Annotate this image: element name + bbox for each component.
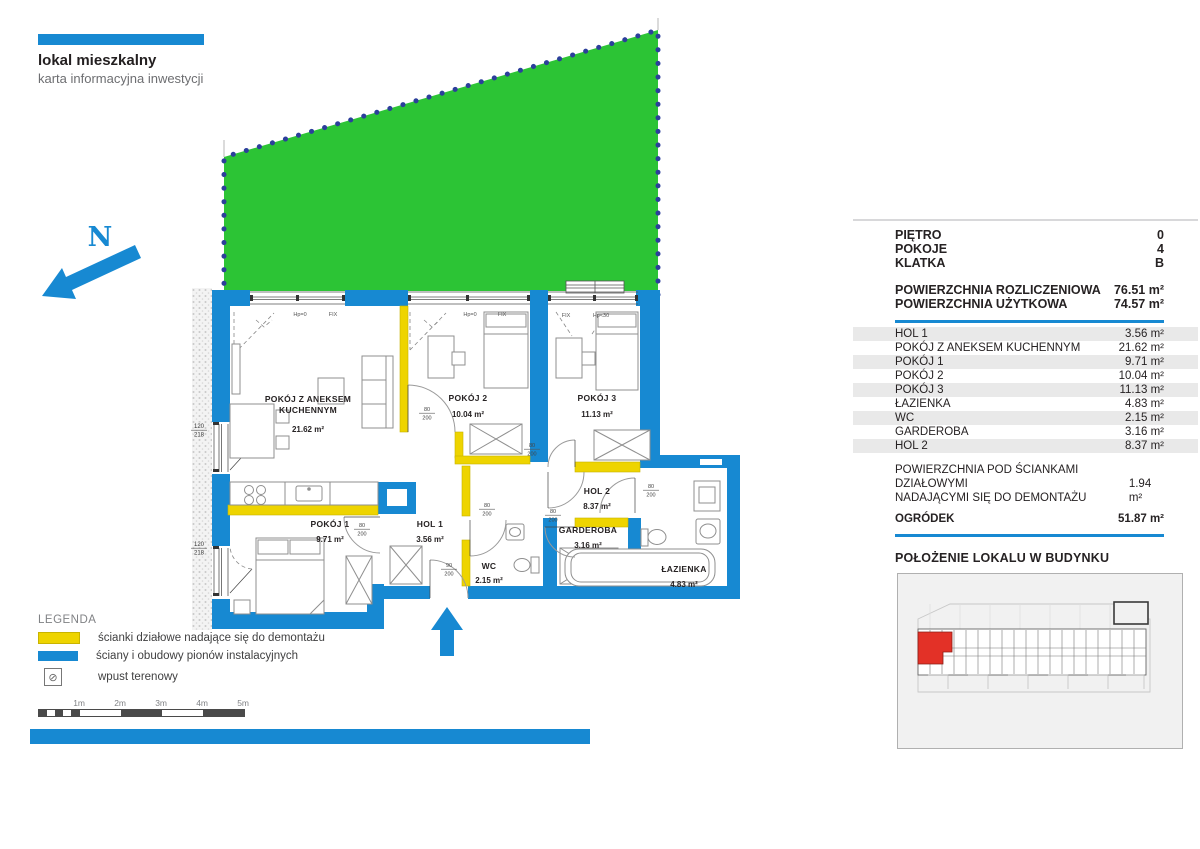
dimension-label: 200 — [527, 452, 536, 458]
dimension-label: 80 — [529, 443, 535, 449]
divider — [895, 320, 1164, 323]
dimension-label: 218 — [194, 551, 205, 557]
bath-toilet — [641, 529, 648, 546]
room-label: POKÓJ 2 — [449, 392, 488, 403]
balcony-door-2 — [214, 547, 252, 596]
room-label: GARDEROBA — [559, 525, 617, 535]
legend-item-walls: ściany i obudowy pionów instalacyjnych — [38, 650, 325, 662]
area-label: 8.37 m² — [583, 502, 611, 511]
area-label: 11.13 m² — [581, 410, 613, 419]
scale-label: 3m — [126, 698, 167, 708]
dimension-label: 80 — [550, 509, 556, 515]
dining-table — [230, 404, 274, 458]
area-summary-rows: POWIERZCHNIA ROZLICZENIOWA76.51 m²POWIER… — [853, 283, 1198, 311]
room-label: WC — [482, 561, 497, 571]
scale-labels: 1m2m3m4m5m — [38, 698, 244, 708]
adjacent-structure-hatch — [192, 288, 212, 630]
vent-slot — [700, 459, 722, 465]
mini-map-annex — [1114, 602, 1148, 624]
area-label: 3.16 m² — [574, 541, 602, 550]
room-row: POKÓJ Z ANEKSEM KUCHENNYM21.62 m² — [853, 341, 1198, 355]
garden-area — [224, 18, 658, 297]
area-label: 10.04 m² — [452, 410, 484, 419]
room-row: POKÓJ 210.04 m² — [853, 369, 1198, 383]
dimension-label: 200 — [482, 512, 491, 518]
drain-icon: ⊘ — [44, 668, 62, 686]
scale-label: 4m — [167, 698, 208, 708]
nightstand — [234, 600, 250, 614]
wc-sink — [506, 524, 524, 540]
legend-title: LEGENDA — [38, 614, 325, 626]
scale-label: 2m — [85, 698, 126, 708]
sofa — [362, 356, 393, 428]
scale-label: 5m — [208, 698, 249, 708]
area-label: 3.56 m² — [416, 535, 444, 544]
dimension-label: 200 — [646, 493, 655, 499]
area-label: 2.15 m² — [475, 576, 503, 585]
area-label: 4.83 m² — [670, 580, 698, 589]
window-frame-pokoj3 — [566, 281, 624, 293]
location-heading: POŁOŻENIE LOKALU W BUDYNKU — [853, 541, 1198, 565]
room-row: POKÓJ 311.13 m² — [853, 383, 1198, 397]
scale-bar-graphic — [38, 709, 245, 717]
area-label: 9.71 m² — [316, 535, 344, 544]
area-label: 21.62 m² — [292, 425, 324, 434]
room-row: ŁAZIENKA4.83 m² — [853, 397, 1198, 411]
divider — [895, 534, 1164, 537]
room-row: WC2.15 m² — [853, 411, 1198, 425]
room-row: POKÓJ 19.71 m² — [853, 355, 1198, 369]
scale-label: 1m — [44, 698, 85, 708]
garden-value: 51.87 m² — [1118, 513, 1164, 525]
scale-bar: 1m2m3m4m5m — [38, 698, 244, 717]
area-row: POWIERZCHNIA UŻYTKOWA74.57 m² — [853, 297, 1198, 311]
win-label: FIX — [562, 313, 571, 319]
area-row: POWIERZCHNIA ROZLICZENIOWA76.51 m² — [853, 283, 1198, 297]
north-label: N — [88, 222, 113, 253]
legend-item-label: ściany i obudowy pionów instalacyjnych — [96, 650, 298, 662]
dimension-label: 90 — [446, 563, 452, 569]
dimension-label: 200 — [548, 518, 557, 524]
dimension-label: 80 — [424, 407, 430, 413]
win-label: FIX — [498, 312, 507, 318]
entrance-arrow — [431, 607, 463, 656]
desk-pokoj3 — [556, 338, 582, 378]
room-label: HOL 2 — [584, 486, 610, 496]
desk-pokoj2 — [428, 336, 454, 378]
yellow-swatch — [38, 632, 80, 644]
demolition-value: 1.94 m² — [1129, 477, 1164, 505]
dimension-label: 218 — [194, 433, 205, 439]
room-row: GARDEROBA3.16 m² — [853, 425, 1198, 439]
legend-item-label: wpust terenowy — [98, 671, 178, 683]
blue-swatch — [38, 651, 78, 661]
legend-item-partitions: ścianki działowe nadające się do demonta… — [38, 632, 325, 644]
dimension-label: 80 — [648, 484, 654, 490]
room-label: POKÓJ 3 — [578, 392, 617, 403]
room-label: POKÓJ Z ANEKSEM — [265, 393, 351, 404]
win-label: Hp=0 — [463, 312, 476, 318]
demolition-label-line1: POWIERZCHNIA POD ŚCIANKAMI DZIAŁOWYMI — [895, 463, 1129, 491]
footer-accent-bar — [30, 729, 590, 744]
room-label: HOL 1 — [417, 519, 443, 529]
attribute-row: KLATKAB — [853, 256, 1198, 270]
garden-label: OGRÓDEK — [895, 513, 954, 525]
demolition-label-line2: NADAJĄCYMI SIĘ DO DEMONTAŻU — [895, 491, 1129, 505]
room-label: KUCHENNYM — [279, 405, 337, 415]
dimension-label: 200 — [357, 532, 366, 538]
tv-board — [232, 344, 240, 394]
win-label: FIX — [329, 312, 338, 318]
room-area-table: HOL 13.56 m²POKÓJ Z ANEKSEM KUCHENNYM21.… — [853, 327, 1198, 453]
dimension-label: 80 — [359, 523, 365, 529]
dimension-label: 120 — [194, 424, 205, 430]
dimension-label: 80 — [484, 503, 490, 509]
room-row: HOL 13.56 m² — [853, 327, 1198, 341]
demolition-area-row: POWIERZCHNIA POD ŚCIANKAMI DZIAŁOWYMI NA… — [853, 463, 1198, 505]
dimension-label: 200 — [422, 416, 431, 422]
building-location-map — [897, 573, 1183, 749]
legend: LEGENDA ścianki działowe nadające się do… — [38, 614, 325, 692]
room-row: HOL 28.37 m² — [853, 439, 1198, 453]
win-label: Hp<30 — [593, 313, 609, 319]
room-label: ŁAZIENKA — [661, 564, 706, 574]
win-label: Hp=0 — [293, 312, 306, 318]
building-plan-mini — [898, 574, 1182, 748]
apartment-info-panel: PIĘTRO0POKOJE4KLATKAB POWIERZCHNIA ROZLI… — [853, 219, 1198, 749]
attribute-row: PIĘTRO0 — [853, 228, 1198, 242]
wc-toilet — [531, 557, 539, 573]
dimension-label: 120 — [194, 542, 205, 548]
legend-item-label: ścianki działowe nadające się do demonta… — [98, 632, 325, 644]
room-label: POKÓJ 1 — [311, 518, 350, 529]
garden-area-row: OGRÓDEK 51.87 m² — [853, 513, 1198, 525]
attribute-rows: PIĘTRO0POKOJE4KLATKAB — [853, 228, 1198, 270]
washing-machine — [694, 481, 720, 511]
north-arrow — [42, 245, 141, 299]
legend-item-drain: ⊘ wpust terenowy — [38, 668, 325, 686]
dimension-label: 200 — [444, 572, 453, 578]
attribute-row: POKOJE4 — [853, 242, 1198, 256]
